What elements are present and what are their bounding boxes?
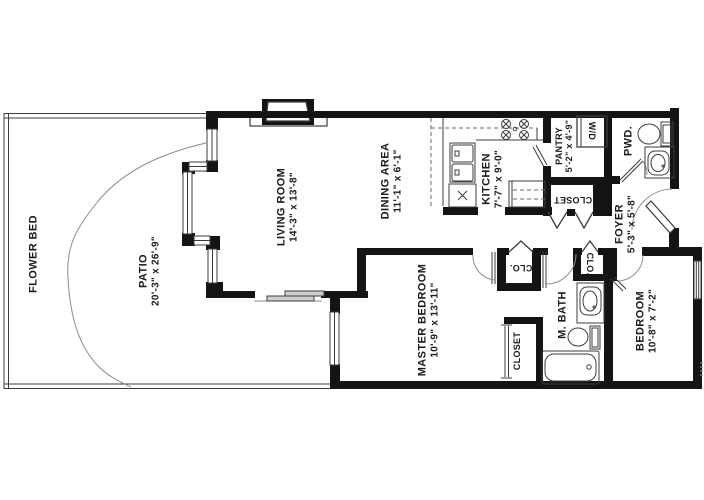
- floor-plan-drawing: [0, 0, 704, 500]
- broom-closet-shelves: [509, 181, 545, 207]
- room-label-kitchen: KITCHEN7'-7" x 9'-0": [481, 150, 506, 208]
- kitchen-sink-icon: [450, 143, 475, 182]
- door-swing-powder-room: [620, 159, 647, 182]
- mbath-toilet-icon: [568, 326, 600, 349]
- door-swing-pantry: [533, 145, 547, 167]
- room-label-washer-dryer: W/D: [587, 122, 597, 140]
- patio-slider-door: [254, 291, 324, 301]
- room-label-master-bath: M. BATH: [557, 291, 570, 339]
- room-label-patio: PATIO20'-3" x 26'-9": [138, 236, 163, 306]
- room-label-closet-left: CLO.: [510, 263, 533, 273]
- room-label-powder-room: PWD.: [623, 126, 636, 156]
- room-label-living-room: LIVING ROOM14'-3" x 13'-8": [276, 168, 301, 246]
- door-swing-master-bath: [543, 251, 576, 288]
- room-label-bedroom: BEDROOM10'-8" x 7'-2": [635, 289, 660, 353]
- room-label-pantry: PANTRY5'-2" x 4'-9": [554, 120, 574, 173]
- pwd-sink-icon: [645, 147, 674, 178]
- master-closet-door-lines: [501, 325, 512, 378]
- mbath-sink-icon: [577, 283, 604, 323]
- refrigerator-icon: [449, 184, 476, 207]
- room-label-flower-bed: FLOWER BED: [28, 215, 41, 293]
- bifold-door-closet-right: [582, 241, 598, 252]
- room-label-dining-area: DINING AREA11'-1" x 6'-1": [380, 143, 405, 220]
- room-label-master-closet: CLOSET: [512, 332, 522, 370]
- floorplan-canvas: FLOWER BED PATIO20'-3" x 26'-9" LIVING R…: [0, 0, 704, 500]
- room-label-hall-closet: CLOSET: [554, 195, 592, 205]
- bifold-door-closet-left: [509, 241, 533, 252]
- room-label-closet-right: CLO.: [585, 253, 595, 276]
- bathtub-icon: [542, 351, 599, 384]
- door-swing-master-bedroom: [473, 252, 496, 284]
- pwd-toilet-icon: [638, 122, 673, 146]
- room-label-foyer: FOYER5'-3" x 5'-8": [614, 195, 639, 253]
- room-label-master-bedroom: MASTER BEDROOM10'-9" x 13'-11": [417, 264, 442, 377]
- kitchen-stove-icon: [502, 120, 529, 140]
